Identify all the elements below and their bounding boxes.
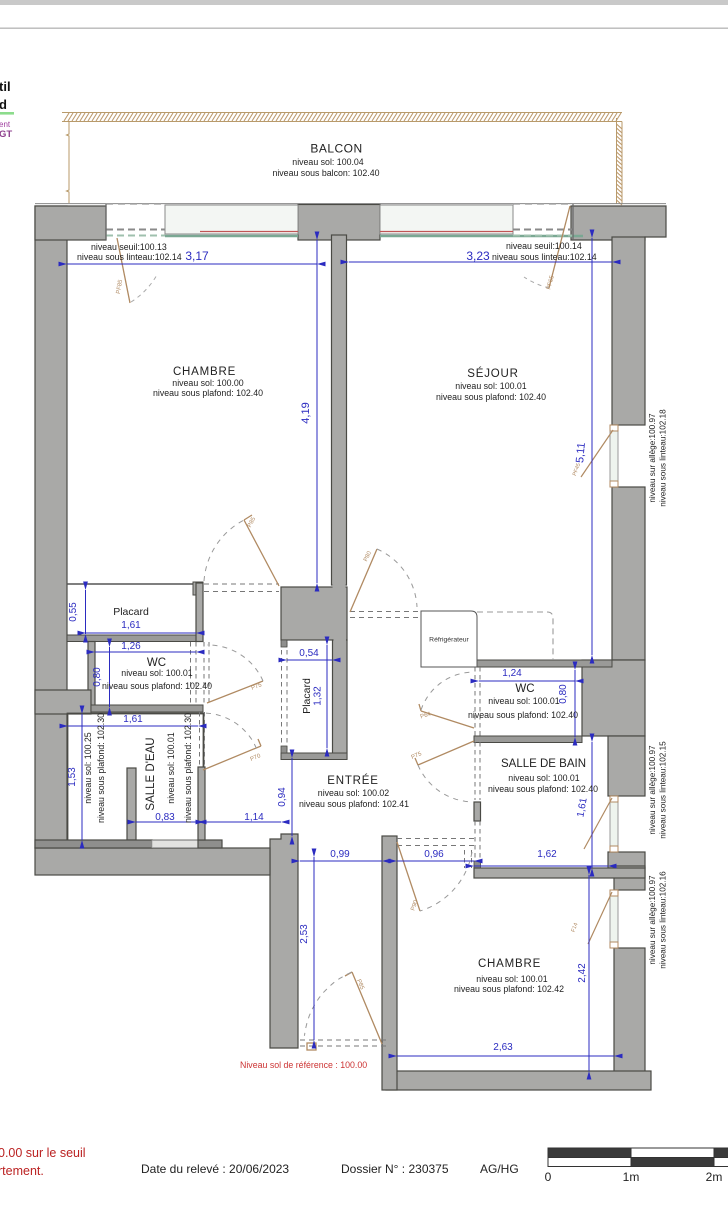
svg-text:niveau sous plafond: 102.40: niveau sous plafond: 102.40 bbox=[102, 681, 212, 691]
svg-text:niveau sous linteau:102.14: niveau sous linteau:102.14 bbox=[492, 252, 597, 262]
svg-text:niveau sous plafond: 102.40: niveau sous plafond: 102.40 bbox=[153, 388, 263, 398]
svg-text:niveau sol: 100.04: niveau sol: 100.04 bbox=[292, 157, 364, 167]
svg-text:1,61: 1,61 bbox=[123, 714, 143, 725]
svg-text:Réfrigérateur: Réfrigérateur bbox=[429, 637, 469, 644]
svg-text:niveau sol: 100.01: niveau sol: 100.01 bbox=[476, 974, 548, 984]
svg-text:niveau seuil:100.13: niveau seuil:100.13 bbox=[91, 242, 167, 252]
svg-text:2,53: 2,53 bbox=[299, 924, 310, 944]
svg-text:Niveau sol de référence : 100.: Niveau sol de référence : 100.00 bbox=[240, 1060, 367, 1070]
svg-text:1,53: 1,53 bbox=[67, 767, 78, 787]
svg-text:niveau sol: 100.01: niveau sol: 100.01 bbox=[455, 381, 527, 391]
svg-text:Placard: Placard bbox=[113, 606, 149, 618]
svg-text:niveau sol: 100.01: niveau sol: 100.01 bbox=[166, 732, 176, 804]
svg-text:1,24: 1,24 bbox=[502, 668, 522, 679]
svg-text:4,19: 4,19 bbox=[300, 402, 312, 423]
svg-text:niveau sous linteau:102.14: niveau sous linteau:102.14 bbox=[77, 252, 182, 262]
svg-text:2,63: 2,63 bbox=[493, 1042, 513, 1053]
svg-text:niveau sous plafond: 102.41: niveau sous plafond: 102.41 bbox=[299, 799, 409, 809]
svg-text:niveau sous plafond: 102.40: niveau sous plafond: 102.40 bbox=[488, 784, 598, 794]
svg-text:0.00 sur le seuil: 0.00 sur le seuil bbox=[0, 1146, 86, 1160]
svg-text:1,14: 1,14 bbox=[244, 812, 264, 823]
svg-text:0,54: 0,54 bbox=[299, 648, 319, 659]
svg-text:3,17: 3,17 bbox=[185, 249, 209, 263]
svg-text:AG/HG: AG/HG bbox=[480, 1162, 519, 1176]
svg-text:1,61: 1,61 bbox=[121, 620, 141, 631]
svg-text:niveau sous plafond: 102.30: niveau sous plafond: 102.30 bbox=[96, 713, 106, 823]
svg-text:niveau sol: 100.02: niveau sol: 100.02 bbox=[318, 788, 390, 798]
svg-text:GT: GT bbox=[0, 129, 12, 140]
svg-text:1,26: 1,26 bbox=[121, 641, 141, 652]
svg-text:1,62: 1,62 bbox=[537, 849, 557, 860]
svg-text:niveau sous linteau:102.18: niveau sous linteau:102.18 bbox=[659, 409, 668, 507]
svg-text:niveau sol: 100.00: niveau sol: 100.00 bbox=[172, 378, 244, 388]
svg-text:Placard: Placard bbox=[301, 678, 313, 714]
svg-text:BALCON: BALCON bbox=[310, 142, 362, 156]
svg-text:niveau sur allège:100.97: niveau sur allège:100.97 bbox=[648, 413, 657, 503]
svg-text:niveau sous plafond: 102.42: niveau sous plafond: 102.42 bbox=[454, 984, 564, 994]
svg-text:Date du relevé : 20/06/2023: Date du relevé : 20/06/2023 bbox=[141, 1162, 289, 1176]
svg-text:0,96: 0,96 bbox=[424, 849, 444, 860]
svg-text:til: til bbox=[0, 79, 11, 94]
svg-text:CHAMBRE: CHAMBRE bbox=[478, 958, 541, 970]
svg-text:2,42: 2,42 bbox=[577, 963, 588, 983]
svg-text:0: 0 bbox=[545, 1170, 552, 1184]
svg-text:SALLE DE BAIN: SALLE DE BAIN bbox=[501, 758, 586, 770]
svg-text:1,32: 1,32 bbox=[313, 686, 324, 706]
svg-text:niveau seuil:100.14: niveau seuil:100.14 bbox=[506, 241, 582, 251]
svg-text:niveau sous plafond: 102.30: niveau sous plafond: 102.30 bbox=[183, 713, 193, 823]
svg-text:niveau sol: 100.01: niveau sol: 100.01 bbox=[488, 696, 560, 706]
svg-text:niveau sous plafond: 102.40: niveau sous plafond: 102.40 bbox=[436, 392, 546, 402]
svg-text:niveau sol: 100.01: niveau sol: 100.01 bbox=[121, 668, 193, 678]
svg-text:WC: WC bbox=[515, 683, 534, 695]
svg-text:niveau sous balcon: 102.40: niveau sous balcon: 102.40 bbox=[272, 168, 379, 178]
svg-text:CHAMBRE: CHAMBRE bbox=[173, 366, 236, 378]
svg-text:Dossier N° : 230375: Dossier N° : 230375 bbox=[341, 1162, 449, 1176]
svg-text:0,94: 0,94 bbox=[277, 787, 288, 807]
svg-text:niveau sous plafond: 102.40: niveau sous plafond: 102.40 bbox=[468, 710, 578, 720]
svg-text:0,83: 0,83 bbox=[155, 812, 175, 823]
svg-text:niveau sol: 100.25: niveau sol: 100.25 bbox=[83, 732, 93, 804]
svg-text:SÉJOUR: SÉJOUR bbox=[467, 367, 518, 380]
svg-text:ENTRÉE: ENTRÉE bbox=[327, 774, 378, 787]
svg-text:niveau sur allège:100.97: niveau sur allège:100.97 bbox=[648, 745, 657, 835]
svg-text:rtement.: rtement. bbox=[0, 1164, 44, 1178]
svg-text:0,99: 0,99 bbox=[330, 849, 350, 860]
svg-text:5,11: 5,11 bbox=[574, 442, 588, 464]
svg-text:3,23: 3,23 bbox=[466, 249, 490, 263]
svg-text:niveau sous linteau:102.15: niveau sous linteau:102.15 bbox=[659, 741, 668, 839]
svg-text:niveau sur allège:100.97: niveau sur allège:100.97 bbox=[648, 875, 657, 965]
svg-text:niveau sol: 100.01: niveau sol: 100.01 bbox=[508, 773, 580, 783]
svg-text:SALLE D'EAU: SALLE D'EAU bbox=[145, 737, 157, 810]
svg-text:0,55: 0,55 bbox=[68, 602, 79, 622]
svg-text:d: d bbox=[0, 97, 7, 112]
svg-text:1m: 1m bbox=[623, 1170, 640, 1184]
svg-text:2m: 2m bbox=[706, 1170, 723, 1184]
svg-text:niveau sous linteau:102.16: niveau sous linteau:102.16 bbox=[659, 871, 668, 969]
svg-text:ent: ent bbox=[0, 120, 11, 129]
